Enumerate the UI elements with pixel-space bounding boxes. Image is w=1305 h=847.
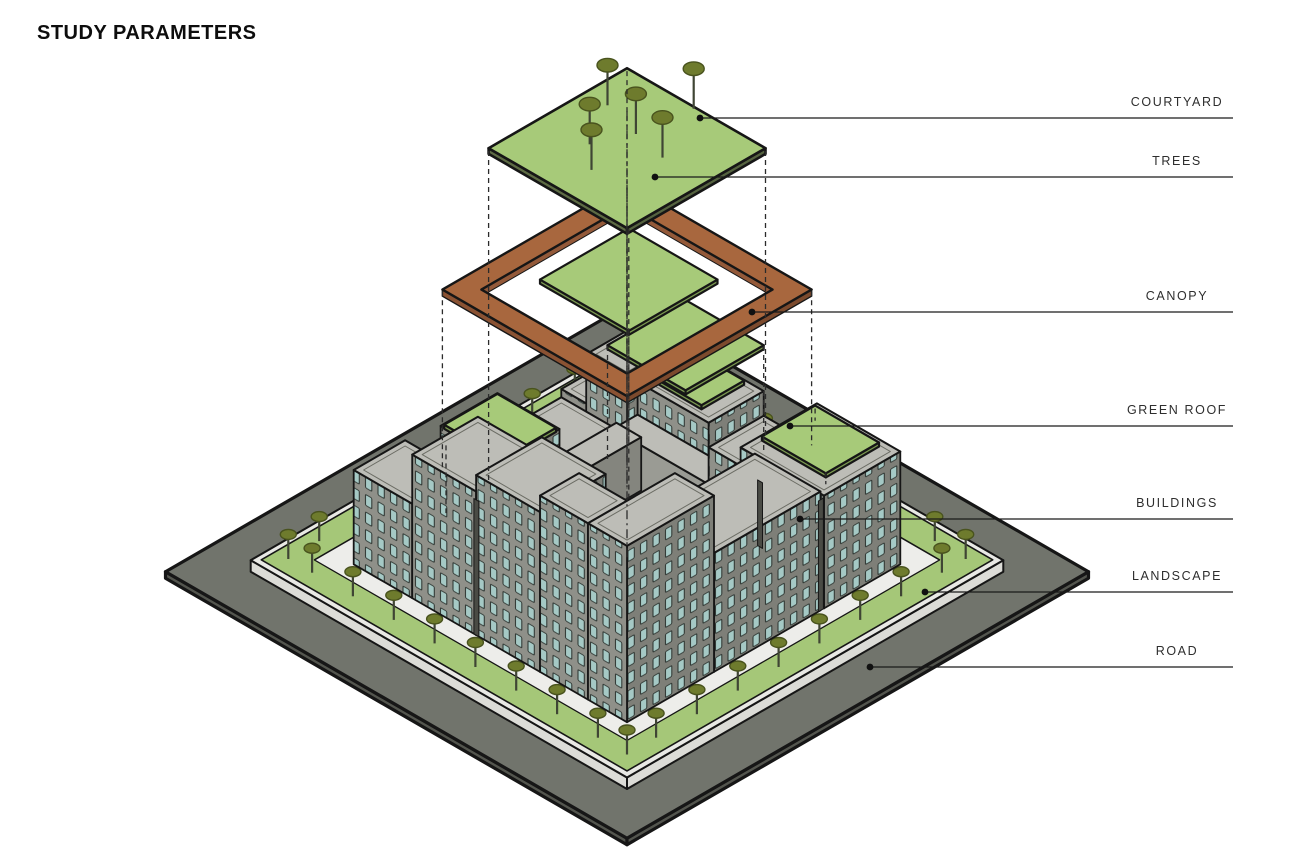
page-title: STUDY PARAMETERS [37,22,257,45]
label-buildings: BUILDINGS [1113,496,1241,510]
label-trees: TREES [1113,154,1241,168]
label-canopy: CANOPY [1113,289,1241,303]
exploded-axonometric-svg [0,0,1305,847]
study-parameters-diagram: STUDY PARAMETERS COURTYARD TREES CANOPY … [0,0,1305,847]
label-road: ROAD [1113,644,1241,658]
label-green-roof: GREEN ROOF [1113,403,1241,417]
label-courtyard: COURTYARD [1113,95,1241,109]
label-landscape: LANDSCAPE [1113,569,1241,583]
